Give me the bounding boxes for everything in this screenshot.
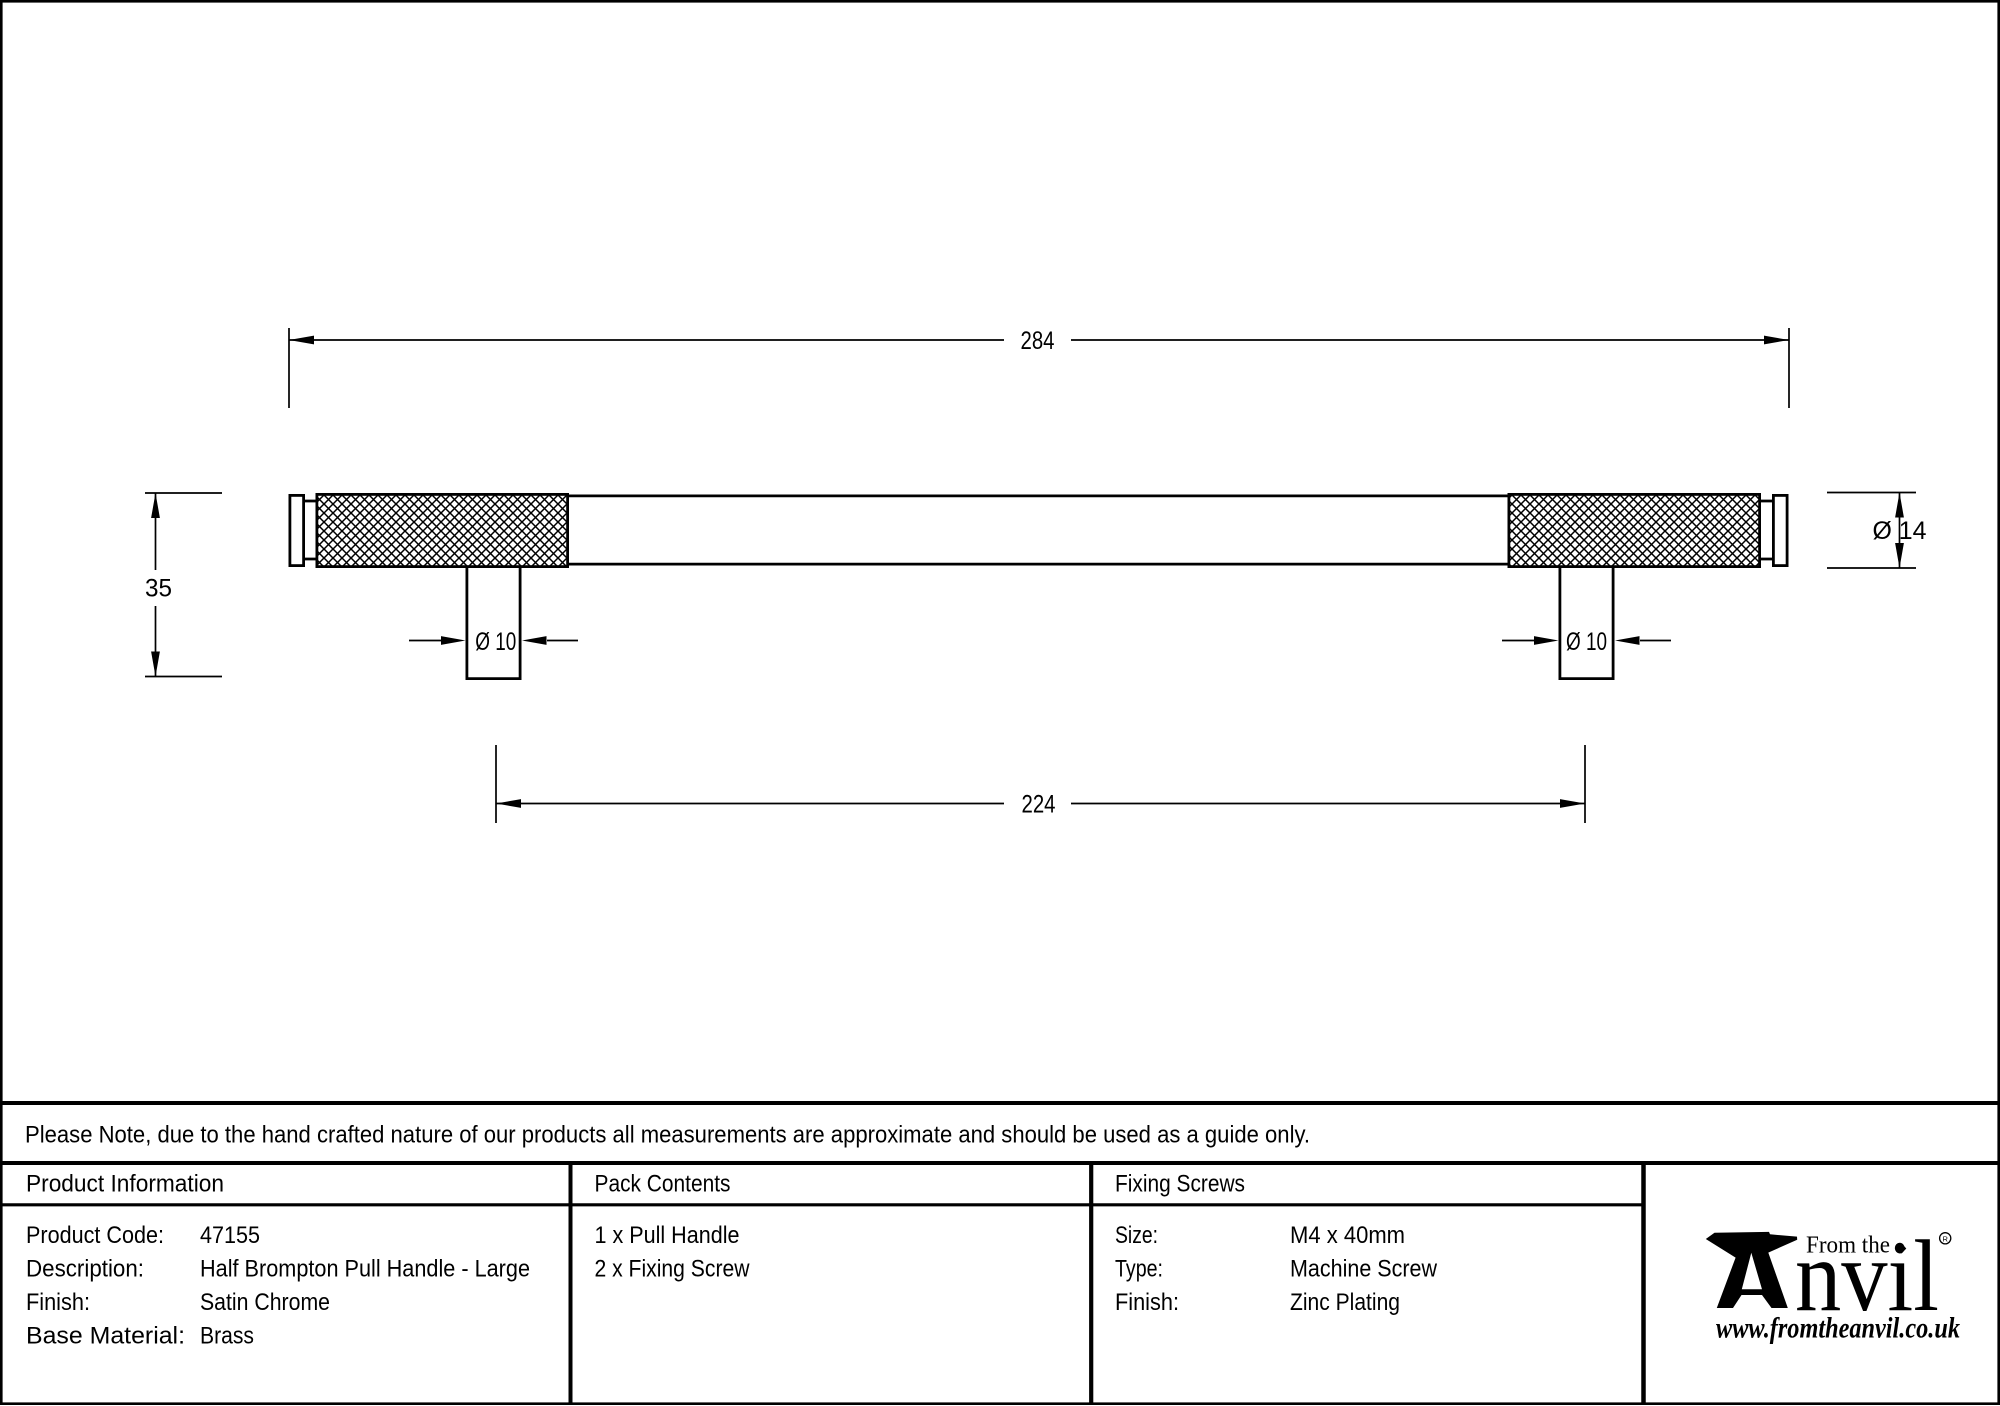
svg-text:Product Information: Product Information xyxy=(26,1171,224,1198)
svg-text:Please Note, due to the hand c: Please Note, due to the hand crafted nat… xyxy=(25,1122,1310,1149)
svg-text:Machine Screw: Machine Screw xyxy=(1290,1256,1437,1283)
svg-text:Half Brompton Pull Handle - La: Half Brompton Pull Handle - Large xyxy=(200,1256,530,1283)
svg-text:M4 x 40mm: M4 x 40mm xyxy=(1290,1222,1405,1249)
svg-text:Zinc Plating: Zinc Plating xyxy=(1290,1289,1400,1316)
svg-text:35: 35 xyxy=(145,575,172,603)
svg-text:Finish:: Finish: xyxy=(26,1289,90,1316)
svg-text:Satin Chrome: Satin Chrome xyxy=(200,1289,330,1316)
svg-text:Ø 14: Ø 14 xyxy=(1873,517,1927,545)
svg-text:Description:: Description: xyxy=(26,1256,144,1283)
svg-text:47155: 47155 xyxy=(200,1222,260,1249)
svg-text:284: 284 xyxy=(1021,327,1055,355)
svg-text:Brass: Brass xyxy=(200,1323,254,1350)
svg-text:Size:: Size: xyxy=(1115,1222,1158,1249)
svg-text:Product Code:: Product Code: xyxy=(26,1222,164,1249)
svg-text:Type:: Type: xyxy=(1115,1256,1163,1283)
svg-text:2 x Fixing Screw: 2 x Fixing Screw xyxy=(595,1256,750,1283)
svg-text:224: 224 xyxy=(1022,791,1056,819)
svg-text:1 x Pull Handle: 1 x Pull Handle xyxy=(595,1222,740,1249)
svg-text:Finish:: Finish: xyxy=(1115,1289,1179,1316)
svg-text:Base Material:: Base Material: xyxy=(26,1323,185,1350)
svg-text:R: R xyxy=(1942,1234,1948,1243)
svg-text:Ø 10: Ø 10 xyxy=(475,628,516,656)
svg-text:Fixing Screws: Fixing Screws xyxy=(1115,1171,1245,1198)
svg-text:www.fromtheanvil.co.uk: www.fromtheanvil.co.uk xyxy=(1716,1312,1960,1345)
svg-text:Pack Contents: Pack Contents xyxy=(595,1171,731,1198)
svg-text:Ø 10: Ø 10 xyxy=(1566,628,1607,656)
